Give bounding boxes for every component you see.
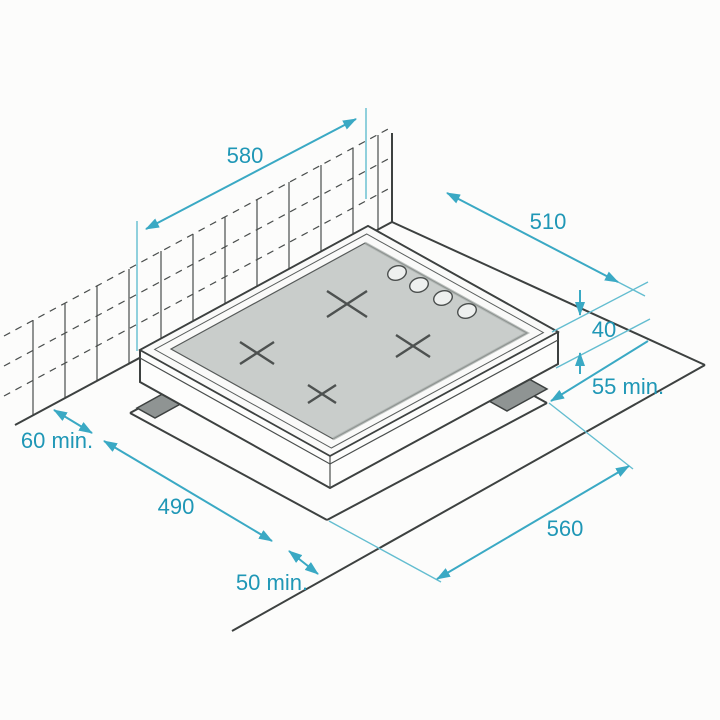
extension-line bbox=[329, 521, 441, 582]
clearance-left-label: 60 min. bbox=[21, 428, 93, 453]
clearance-front-label: 50 min. bbox=[236, 570, 308, 595]
extension-line bbox=[618, 282, 645, 296]
hob-thickness-label: 40 bbox=[592, 317, 616, 342]
dimension-hob-depth: 510 bbox=[447, 193, 645, 296]
hob-width-label: 580 bbox=[227, 143, 264, 168]
installation-diagram: 580 510 40 55 min. 60 min. bbox=[0, 0, 720, 720]
dimension-clearance-rear: 55 min. bbox=[551, 341, 664, 401]
dimension-hob-thickness: 40 bbox=[552, 282, 650, 374]
cutout-depth-label: 490 bbox=[158, 494, 195, 519]
dimension-cutout-depth: 490 bbox=[104, 441, 272, 541]
dimension-clearance-front: 50 min. bbox=[236, 551, 318, 595]
hob bbox=[140, 226, 558, 488]
diagram-canvas: 580 510 40 55 min. 60 min. bbox=[0, 0, 720, 720]
hob-depth-label: 510 bbox=[530, 209, 567, 234]
cutout-width-label: 560 bbox=[547, 516, 584, 541]
clearance-rear-label: 55 min. bbox=[592, 374, 664, 399]
